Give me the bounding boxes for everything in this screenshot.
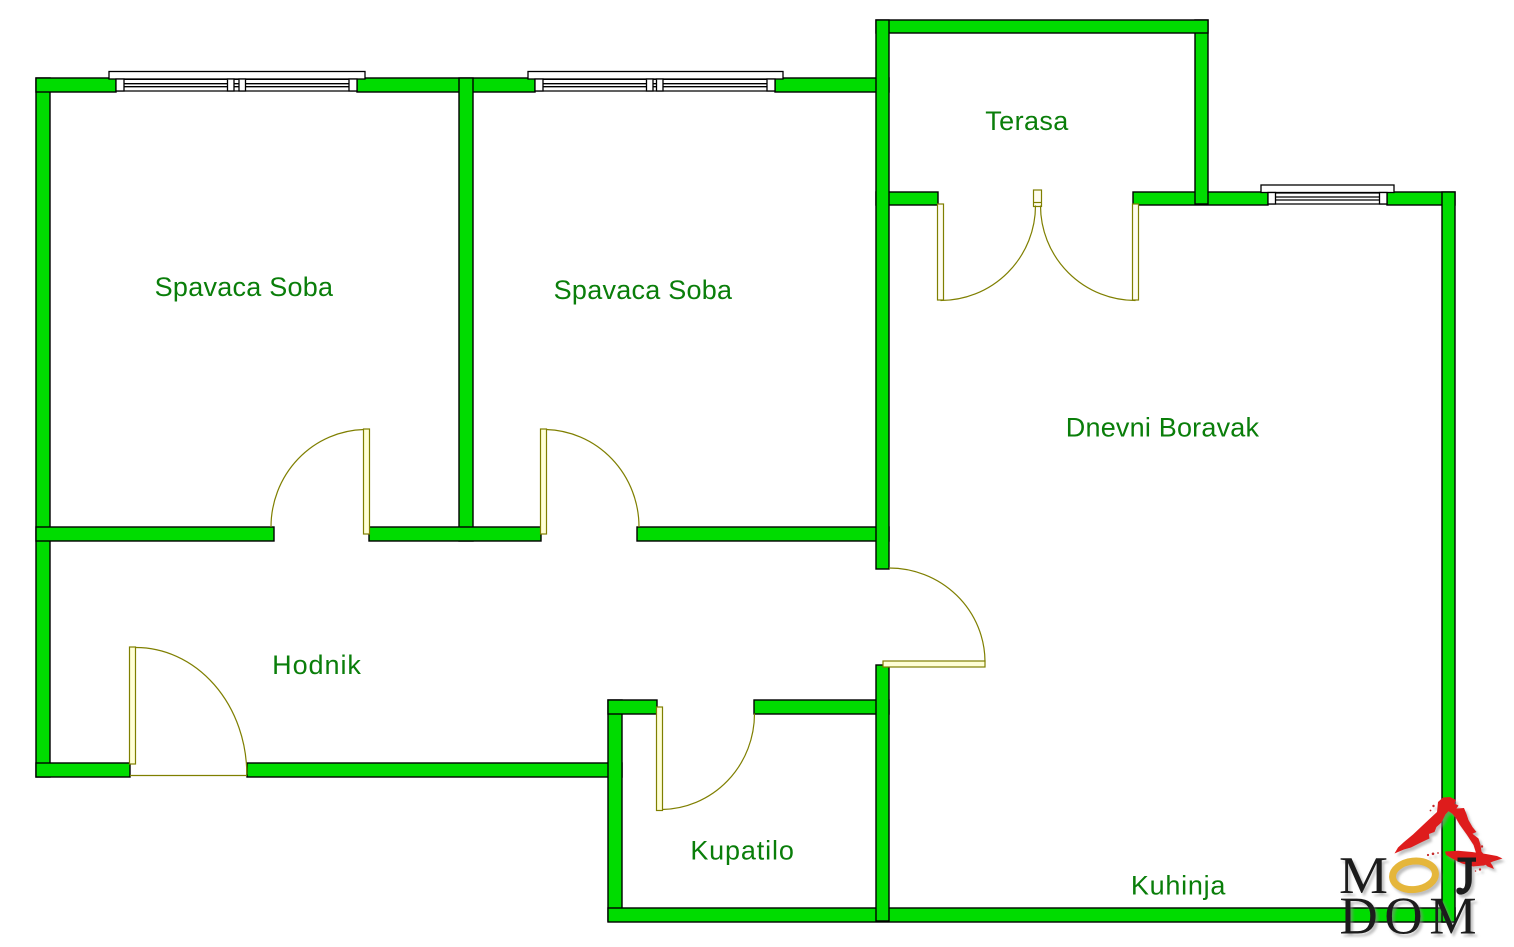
svg-text:Hodnik: Hodnik [272,650,362,680]
svg-text:DOM: DOM [1340,888,1477,946]
svg-text:Spavaca Soba: Spavaca Soba [554,275,733,305]
svg-text:Terasa: Terasa [985,106,1069,136]
svg-text:Kuhinja: Kuhinja [1131,871,1227,901]
svg-text:Kupatilo: Kupatilo [690,836,794,866]
svg-text:Dnevni Boravak: Dnevni Boravak [1066,413,1260,443]
svg-text:Spavaca Soba: Spavaca Soba [155,272,334,302]
